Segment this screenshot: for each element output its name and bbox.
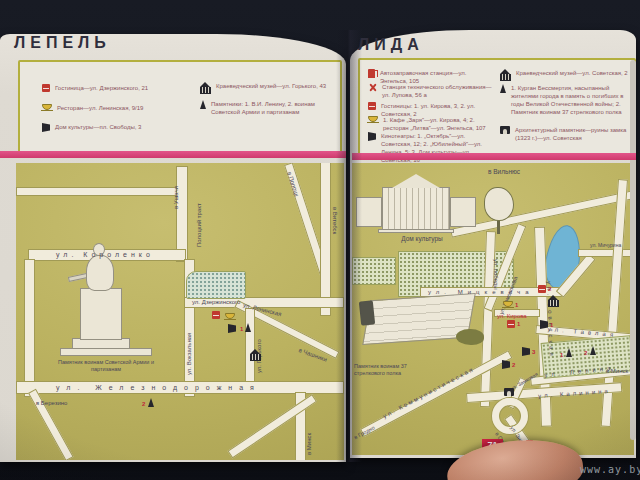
road-to-vitebsk: [320, 163, 331, 316]
road: [24, 259, 35, 397]
legend-row: Станция технического обслуживания—ул. Лу…: [368, 83, 492, 99]
cup-icon: [42, 104, 52, 110]
monument-icon: [500, 84, 506, 93]
watermark: www.ay.by: [580, 464, 640, 475]
museum-icon: [200, 87, 211, 94]
building-wing: [450, 197, 476, 227]
flag-icon: [228, 324, 236, 333]
legend-text: Краеведческий музей—ул. Горького, 43: [216, 82, 326, 90]
legend-text: Дом культуры—пл. Свободы, 3: [55, 123, 141, 131]
marker-number: 2: [142, 401, 145, 407]
monument-icon: [200, 100, 206, 109]
legend-text: Архитектурный памятник—руины замка (1323…: [515, 126, 628, 142]
museum-icon: [548, 300, 559, 307]
legend-row: Гостиница—ул. Дзержинского, 21: [42, 84, 192, 92]
castle-ruins-icon: [500, 126, 510, 134]
hotel-icon: [212, 311, 220, 319]
statue-figure: [86, 255, 114, 291]
road-michurina: [578, 249, 634, 257]
road-polotsk-trakt: [176, 166, 188, 262]
legend-text: Краеведческий музей—ул. Советская, 2: [516, 69, 628, 77]
book-photo: ЛЕПЕЛЬ Гостиница—ул. Дзержинского, 21 Ре…: [0, 0, 640, 480]
legend-row: Краеведческий музей—ул. Советская, 2: [500, 69, 628, 81]
page-edge-stack: [630, 60, 636, 440]
monument-caption: Памятник воинам 37 стрелкового полка: [354, 363, 434, 377]
marker-number: 1: [560, 352, 563, 358]
hotel-icon: [368, 102, 376, 110]
marker-number: 1: [515, 302, 518, 308]
crossed-wrenches-icon: [368, 83, 377, 92]
direction-label: в Ушачи: [173, 186, 180, 209]
legend-row: 1. Курган Бессмертия, насыпанный жителям…: [500, 84, 628, 116]
marker-number: 2: [512, 362, 515, 368]
monument-icon: [148, 398, 154, 407]
street-label: ул. Железнодорожная: [56, 384, 261, 392]
building-colonnade: [382, 187, 450, 231]
page-lepel: ЛЕПЕЛЬ Гостиница—ул. Дзержинского, 21 Ре…: [0, 34, 346, 462]
street-label: ул. Мицкевича: [428, 289, 534, 296]
legend-box: Автозаправочная станция—ул. Энгельса, 10…: [358, 58, 636, 158]
castle-ruins-icon: [504, 388, 514, 396]
building-pediment: [392, 174, 440, 188]
monument-icon: [590, 346, 596, 355]
legend-box: Гостиница—ул. Дзержинского, 21 Ресторан—…: [18, 60, 342, 154]
hotel-icon: [538, 285, 546, 293]
legend-row: Памятники: 1. В.И. Ленину, 2. воинам Сов…: [200, 100, 336, 116]
legend-row: Ресторан—ул. Ленинская, 9/19: [42, 104, 192, 112]
flag-icon: [502, 360, 510, 369]
cup-icon: [503, 301, 513, 307]
direction-label: в Минск: [606, 368, 628, 375]
page-title: ЛИДА: [358, 36, 424, 54]
hotel-icon: [42, 84, 50, 92]
building-caption: Дом культуры: [392, 235, 452, 243]
marker-number: 1: [550, 322, 553, 328]
page-lida: ЛИДА Автозаправочная станция—ул. Энгельс…: [350, 30, 636, 458]
monument-icon: [245, 323, 251, 332]
legend-row: Краеведческий музей—ул. Горького, 43: [200, 82, 336, 94]
street-label: ул. Короленко: [56, 251, 154, 259]
memorial-bush: [456, 329, 484, 345]
street-label: ул. Дзержинского: [192, 299, 240, 306]
hotel-icon: [507, 320, 515, 328]
museum-icon: [500, 74, 511, 81]
fuel-pump-icon: [368, 69, 375, 78]
lida-map: Дом культуры Памятник воинам 37 стрелков…: [352, 163, 634, 455]
legend-text: 1. Кафе „Заря”—ул. Кирова, 4; 2. рестора…: [383, 116, 492, 132]
flag-icon: [368, 132, 376, 141]
legend-text: Памятники: 1. В.И. Ленину, 2. воинам Сов…: [211, 100, 336, 116]
direction-label: в Березино: [36, 400, 67, 407]
page-title: ЛЕПЕЛЬ: [14, 34, 111, 52]
marker-number: 3: [532, 349, 535, 355]
legend-text: Гостиница—ул. Дзержинского, 21: [55, 84, 148, 92]
direction-label: в Вильнюс: [488, 168, 520, 175]
street-label: ул. Мичурина: [590, 243, 621, 249]
flag-icon: [42, 123, 50, 132]
monument-caption: Памятник воинам Советской Армии и партиз…: [44, 359, 168, 373]
lepel-map: Памятник воинам Советской Армии и партиз…: [16, 163, 344, 460]
legend-row: Дом культуры—пл. Свободы, 3: [42, 123, 192, 132]
street-label: ул. победы: [492, 259, 499, 290]
cup-icon: [225, 313, 235, 319]
marker-number: 2: [548, 286, 551, 292]
road: [16, 187, 180, 196]
city-park: [186, 271, 246, 299]
direction-label: в Минск: [306, 433, 313, 455]
book-gutter-shadow: [336, 30, 362, 462]
street-label: Полоцкий тракт: [196, 203, 203, 247]
legend-text: Ресторан—ул. Ленинская, 9/19: [57, 104, 143, 112]
statue-base: [60, 348, 152, 356]
divider-bar: [352, 153, 636, 160]
museum-icon: [250, 354, 261, 361]
marker-number: 2: [584, 350, 587, 356]
flag-icon: [522, 347, 530, 356]
divider-bar: [0, 151, 346, 158]
marker-number: 1: [240, 326, 243, 332]
legend-text: 1. Курган Бессмертия, насыпанный жителям…: [511, 84, 628, 116]
legend-text: Станция технического обслуживания—ул. Лу…: [382, 83, 492, 99]
monument-icon: [566, 348, 572, 357]
statue-pedestal: [80, 288, 122, 340]
building-steps: [378, 229, 454, 233]
street-label: ул. Вокзальная: [186, 333, 193, 375]
tree: [484, 187, 514, 221]
legend-row: Архитектурный памятник—руины замка (1323…: [500, 126, 628, 142]
marker-number: 1: [517, 321, 520, 327]
cup-icon: [368, 116, 378, 122]
legend-row: 1. Кафе „Заря”—ул. Кирова, 4; 2. рестора…: [368, 116, 492, 132]
street-label: ул. Кирова: [497, 313, 527, 320]
